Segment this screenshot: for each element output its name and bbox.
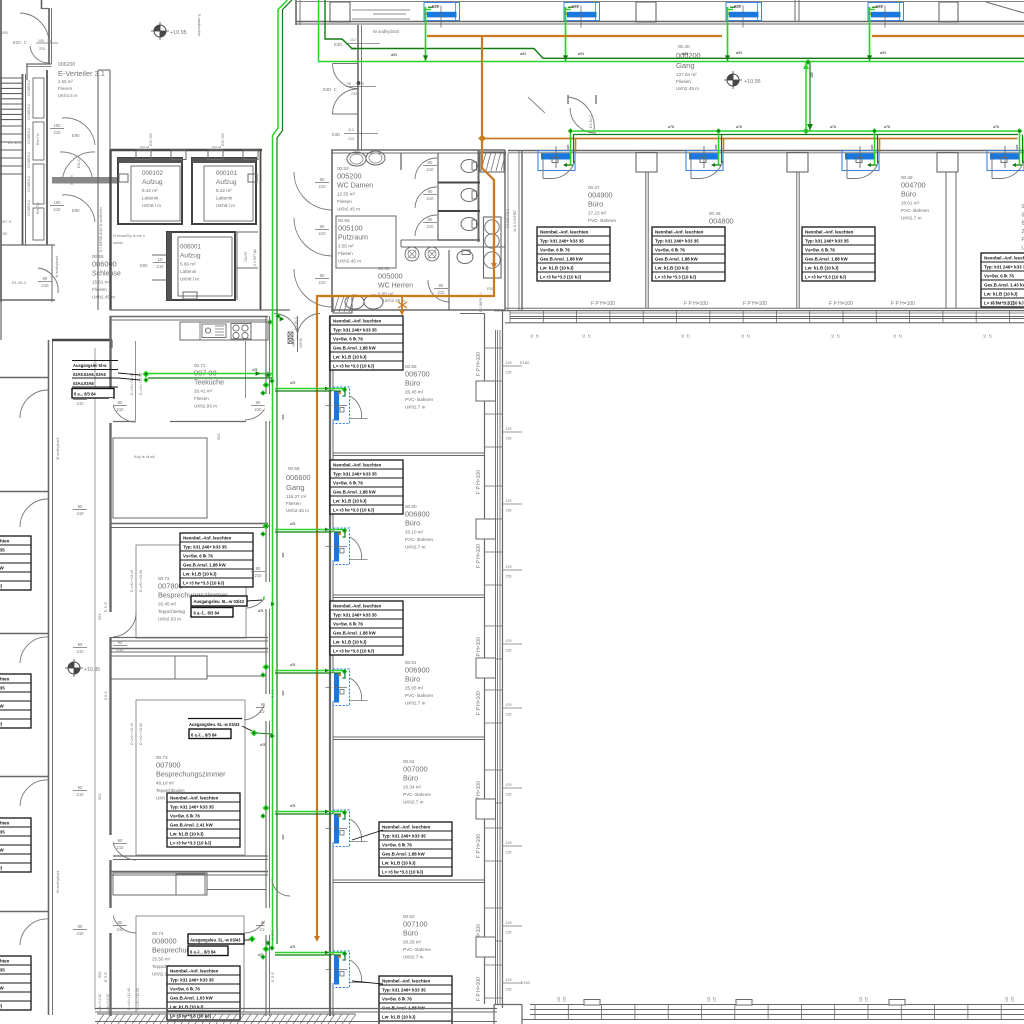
svg-text:Putzraum: Putzraum (338, 235, 368, 242)
svg-text:PVC- Bahnen: PVC- Bahnen (901, 208, 930, 213)
svg-text:Lw: k1.B (10 kJ): Lw: k1.B (10 kJ) (655, 266, 689, 271)
svg-text:00.48: 00.48 (901, 175, 913, 180)
svg-text:00.60: 00.60 (405, 504, 417, 509)
svg-text:a78: a78 (260, 743, 266, 747)
svg-text:75: 75 (47, 39, 51, 43)
svg-text:005200: 005200 (337, 172, 362, 181)
svg-text:28.26 m²: 28.26 m² (403, 940, 422, 945)
svg-text:Typ: k31 246+ k33 35: Typ: k31 246+ k33 35 (984, 265, 1024, 270)
svg-text:Vs=5w. 6 lk 76: Vs=5w. 6 lk 76 (183, 554, 213, 559)
svg-text:UKh2.7 m: UKh2.7 m (901, 215, 922, 220)
svg-text:95: 95 (347, 82, 351, 86)
svg-text:155: 155 (506, 575, 512, 579)
svg-text:UKh2.7 m: UKh2.7 m (405, 404, 426, 409)
svg-text:155: 155 (506, 988, 512, 992)
svg-text:E3C- C: E3C- C (13, 40, 27, 45)
svg-text:F P H=100: F P H=100 (476, 834, 482, 858)
svg-text:125: 125 (865, 996, 869, 1002)
svg-text:E160: E160 (521, 981, 530, 985)
svg-text:006200: 006200 (58, 62, 75, 68)
svg-text:15.61 m²: 15.61 m² (92, 280, 111, 285)
svg-text:80: 80 (320, 177, 325, 182)
svg-text:W andhydrant: W andhydrant (373, 29, 400, 34)
svg-text:00.73: 00.73 (156, 755, 168, 760)
svg-text:Nennbel.-Anf. leuchten: Nennbel.-Anf. leuchten (382, 979, 431, 984)
svg-text:42B: 42B (281, 691, 285, 696)
svg-text:155: 155 (506, 371, 512, 375)
svg-text:UKh2.45 m: UKh2.45 m (337, 206, 360, 211)
svg-text:92: 92 (983, 334, 987, 338)
svg-text:D u K=+13.90: D u K=+13.90 (139, 723, 143, 745)
svg-text:010 10: 010 10 (212, 145, 222, 149)
svg-text:UKh2.45 m: UKh2.45 m (676, 86, 699, 91)
svg-text:210: 210 (77, 511, 85, 516)
svg-text:Ges.B.Ansl. 1.88 kW: Ges.B.Ansl. 1.88 kW (183, 563, 226, 568)
svg-text:Typ: k31 246+ k33 35: Typ: k31 246+ k33 35 (333, 328, 377, 333)
svg-text:Lw: k1.B (10 kJ): Lw: k1.B (10 kJ) (333, 499, 367, 504)
svg-text:Nennbel.-Anf. leuchten: Nennbel.-Anf. leuchten (0, 959, 10, 964)
svg-text:210: 210 (117, 407, 125, 412)
svg-text:Nennbel.-Anf. leuchten: Nennbel.-Anf. leuchten (183, 536, 232, 541)
svg-text:UKh: UKh (156, 795, 165, 800)
svg-text:Vs=5w. 6 lk 76: Vs=5w. 6 lk 76 (984, 274, 1014, 279)
svg-text:E30 -053: E30 -053 (149, 133, 153, 146)
svg-text:210: 210 (77, 649, 85, 654)
svg-text:Typ: k31 246+ k33 35: Typ: k31 246+ k33 35 (333, 472, 377, 477)
svg-text:0 0 B/B 0 0: 0 0 B/B 0 0 (27, 128, 31, 144)
svg-text:5: 5 (362, 82, 364, 86)
svg-text:0 u K=+13.90: 0 u K=+13.90 (106, 994, 110, 1014)
svg-text:Vs=5w. 6 lk 76: Vs=5w. 6 lk 76 (655, 248, 685, 253)
svg-text:F P H=100: F P H=100 (476, 352, 482, 376)
svg-text:210: 210 (42, 283, 50, 288)
svg-text:25: 25 (837, 334, 841, 338)
svg-text:0 0 B/B 0 0: 0 0 B/B 0 0 (27, 176, 31, 192)
svg-text:Nennbel.-Anf. leuchten: Nennbel.-Anf. leuchten (540, 230, 589, 235)
svg-text:129: 129 (506, 565, 512, 569)
svg-text:90: 90 (78, 785, 83, 790)
svg-text:92: 92 (582, 334, 586, 338)
svg-text:D u K=+13.40: D u K=+13.40 (130, 723, 134, 745)
svg-text:00.58: 00.58 (288, 466, 300, 471)
svg-text:F P H=100: F P H=100 (829, 301, 853, 307)
svg-text:92: 92 (831, 334, 835, 338)
svg-text:00.63: 00.63 (403, 914, 415, 919)
svg-text:Nennbel.-Anf. leuchten: Nennbel.-Anf. leuchten (0, 821, 10, 826)
svg-text:Ges.B.Ansl. 1.43 kW: Ges.B.Ansl. 1.43 kW (984, 283, 1024, 288)
svg-text:Vs=5w. 6 lk 76: Vs=5w. 6 lk 76 (333, 622, 363, 627)
svg-text:E S G: E S G (271, 930, 275, 940)
svg-text:Typ: k31 246+ k33 35: Typ: k31 246+ k33 35 (170, 805, 214, 810)
svg-text:155: 155 (506, 437, 512, 441)
svg-text:3.55 m²: 3.55 m² (338, 244, 354, 249)
svg-text:E S G: E S G (104, 972, 108, 982)
svg-text:6 a.-l... 8/3 84: 6 a.-l... 8/3 84 (194, 611, 220, 616)
svg-text:006600: 006600 (286, 473, 311, 482)
svg-text:B randlechler: B randlechler (197, 14, 201, 37)
svg-text:a78: a78 (290, 381, 296, 385)
svg-text:100: 100 (54, 123, 62, 128)
svg-text:Lw: k1.B (10 kJ): Lw: k1.B (10 kJ) (183, 572, 217, 577)
svg-text:F P H=100: F P H=100 (476, 637, 482, 661)
svg-text:a78: a78 (830, 125, 836, 129)
svg-text:240/75: 240/75 (244, 252, 248, 262)
svg-text:E30-C: E30-C (77, 158, 81, 168)
svg-text:E S G: E S G (271, 972, 275, 982)
svg-text:10: 10 (158, 257, 163, 262)
svg-text:26.10 m²: 26.10 m² (405, 530, 424, 535)
svg-text:Ges.B.Ansl. 1.88 kW: Ges.B.Ansl. 1.88 kW (333, 631, 376, 636)
svg-text:a93: a93 (736, 51, 742, 55)
svg-text:90: 90 (118, 400, 123, 405)
svg-text:Aufzug: Aufzug (180, 253, 201, 260)
svg-text:Fliesen: Fliesen (676, 79, 691, 84)
svg-text:Typ: k31 246+ k33 35: Typ: k31 246+ k33 35 (0, 686, 5, 691)
svg-text:90: 90 (256, 566, 261, 571)
svg-text:007800: 007800 (158, 582, 183, 591)
svg-text:L= r3 lw *3.3 (10 kJ): L= r3 lw *3.3 (10 kJ) (333, 364, 375, 369)
svg-text:a28: a28 (572, 4, 579, 9)
svg-text:F P H=100: F P H=100 (591, 301, 615, 307)
svg-text:90: 90 (256, 400, 261, 405)
svg-text:220: 220 (39, 47, 45, 51)
svg-text:28.61 m²: 28.61 m² (901, 201, 920, 206)
svg-text:129: 129 (506, 841, 512, 845)
svg-text:00.55: 00.55 (92, 254, 104, 259)
svg-text:L= r3 lw *3.3 (10 kJ): L= r3 lw *3.3 (10 kJ) (170, 841, 212, 846)
svg-text:Aufzug: Aufzug (142, 179, 163, 186)
svg-text:Nennbel.-Anf. leuchten: Nennbel.-Anf. leuchten (0, 677, 10, 682)
svg-text:42B: 42B (870, 145, 874, 150)
svg-text:210: 210 (117, 927, 125, 932)
svg-text:129: 129 (506, 921, 512, 925)
svg-text:92: 92 (741, 334, 745, 338)
svg-text:a78: a78 (290, 522, 296, 526)
svg-text:Lattenin: Lattenin (142, 196, 159, 201)
svg-text:PVC- Bahnen: PVC- Bahnen (405, 693, 434, 698)
svg-text:25: 25 (687, 334, 691, 338)
svg-text:L= r3 lw *3.3 (10 kJ): L= r3 lw *3.3 (10 kJ) (655, 275, 697, 280)
svg-text:116.27 m²: 116.27 m² (286, 494, 307, 499)
svg-text:925: 925 (557, 996, 561, 1002)
svg-text:Vs=5w. 6 lk 76: Vs=5w. 6 lk 76 (805, 248, 835, 253)
svg-text:25: 25 (588, 334, 592, 338)
svg-text:UKh2.45 m: UKh2.45 m (286, 508, 309, 513)
svg-text:125: 125 (713, 996, 717, 1002)
svg-text:129: 129 (506, 427, 512, 431)
svg-text:Nennbel.-Anf. leuchten: Nennbel.-Anf. leuchten (0, 539, 10, 544)
svg-text:PVC- Bahnen: PVC- Bahnen (403, 792, 432, 797)
svg-text:E90: E90 (72, 133, 80, 138)
svg-text:90: 90 (118, 838, 123, 843)
svg-text:210: 210 (77, 792, 85, 797)
svg-text:925: 925 (1005, 996, 1009, 1002)
svg-text:92: 92 (681, 334, 685, 338)
svg-text:112: 112 (350, 38, 356, 42)
svg-text:Nennbel.-Anf. leuchten: Nennbel.-Anf. leuchten (382, 825, 431, 830)
svg-text:42B: 42B (566, 145, 570, 150)
svg-text:Fliesen: Fliesen (58, 86, 73, 91)
svg-text:Nennbel.-Anf. leuchten: Nennbel.-Anf. leuchten (333, 604, 382, 609)
svg-text:a93: a93 (578, 52, 584, 56)
svg-text:953: 953 (217, 434, 221, 440)
svg-text:210: 210 (427, 224, 435, 229)
svg-text:Büro: Büro (405, 519, 420, 528)
svg-text:Ausgangsleu. 5L.-w 03/43: Ausgangsleu. 5L.-w 03/43 (194, 599, 245, 604)
svg-text:Lw: k1.B (10 kJ): Lw: k1.B (10 kJ) (170, 832, 204, 837)
svg-text:26.41 m²: 26.41 m² (194, 389, 213, 394)
svg-text:6 a... 8/3 84: 6 a... 8/3 84 (74, 392, 96, 397)
svg-text:UKh2.45 m: UKh2.45 m (338, 258, 361, 263)
svg-text:2.55 m²: 2.55 m² (58, 79, 73, 84)
svg-text:Ges.B.Ansl. 1.88 kW: Ges.B.Ansl. 1.88 kW (333, 490, 376, 495)
svg-text:E160: E160 (520, 360, 530, 365)
svg-text:92: 92 (893, 334, 897, 338)
svg-text:000102: 000102 (142, 170, 164, 177)
svg-text:155: 155 (506, 649, 512, 653)
svg-text:a78: a78 (252, 368, 258, 372)
svg-text:210: 210 (255, 573, 263, 578)
svg-text:UKh8.l m: UKh8.l m (142, 203, 161, 208)
svg-text:Ges.B.Ansl. 2.41 kW: Ges.B.Ansl. 2.41 kW (170, 823, 213, 828)
svg-text:5.42 m²: 5.42 m² (216, 188, 232, 193)
svg-text:007900: 007900 (156, 761, 181, 770)
svg-text:a93: a93 (880, 51, 886, 55)
svg-text:F P H=100: F P H=100 (684, 301, 708, 307)
svg-text:D u K=+13.00: D u K=+13.00 (136, 988, 140, 1010)
svg-text:Fliesen: Fliesen (337, 199, 352, 204)
svg-text:Typ: k31 246+ k33 35: Typ: k31 246+ k33 35 (382, 834, 426, 839)
svg-text:Fliesen: Fliesen (286, 501, 301, 506)
svg-text:0 0 B/B 0 0: 0 0 B/B 0 0 (27, 104, 31, 120)
svg-text:a78: a78 (290, 663, 296, 667)
svg-text:E3D- C: E3D- C (323, 87, 337, 92)
svg-text:006001: 006001 (180, 244, 202, 251)
svg-text:005000: 005000 (378, 272, 403, 281)
svg-text:Vs=5w. 6 lk 76: Vs=5w. 6 lk 76 (540, 248, 570, 253)
svg-text:L= r3 lw *3.3 (10 kJ): L= r3 lw *3.3 (10 kJ) (540, 275, 582, 280)
svg-text:Büro: Büro (405, 379, 420, 388)
svg-text:00.62: 00.62 (403, 759, 415, 764)
svg-text:Typ: k31 246+ k33 35: Typ: k31 246+ k33 35 (805, 239, 849, 244)
svg-text:125/30: 125/30 (299, 338, 303, 348)
svg-text:F P H=100: F P H=100 (991, 301, 1015, 307)
svg-text:N etzaufSp is ele n: N etzaufSp is ele n (113, 234, 145, 238)
svg-text:80: 80 (428, 189, 433, 194)
svg-text:42B: 42B (281, 835, 285, 840)
svg-text:Lattenin: Lattenin (216, 196, 233, 201)
svg-text:125: 125 (1011, 996, 1015, 1002)
svg-text:80: 80 (439, 283, 444, 288)
svg-text:Fliesen: Fliesen (194, 396, 209, 401)
svg-text:Vs=5w. 6 lk 76: Vs=5w. 6 lk 76 (382, 997, 412, 1002)
svg-text:210: 210 (427, 196, 435, 201)
svg-text:UKh8.l m: UKh8.l m (180, 276, 199, 281)
svg-text:129: 129 (506, 703, 512, 707)
svg-text:a78: a78 (258, 609, 264, 613)
svg-text:Fliesen: Fliesen (338, 251, 353, 256)
svg-text:005100: 005100 (338, 224, 363, 233)
svg-text:Büro: Büro (901, 190, 916, 199)
svg-text:25: 25 (536, 334, 540, 338)
svg-text:Typ: k31 246+ k33 35: Typ: k31 246+ k33 35 (540, 239, 584, 244)
svg-text:Büro: Büro (588, 200, 603, 209)
svg-text:155: 155 (506, 851, 512, 855)
svg-text:Ges.B.Ansl. 1.88 kW: Ges.B.Ansl. 1.88 kW (382, 852, 425, 857)
svg-text:Ges.B.Ansl. 1.88 kW: Ges.B.Ansl. 1.88 kW (540, 257, 583, 262)
svg-text:D 0 B/FBD 8080 B randtierller: D 0 B/FBD 8080 B randtierller (99, 206, 103, 252)
svg-text:a78: a78 (668, 125, 674, 129)
svg-text:L= r3 lw *3.3 (10 kJ): L= r3 lw *3.3 (10 kJ) (183, 581, 225, 586)
svg-text:Fliesen: Fliesen (92, 287, 107, 292)
svg-text:137.54 m²: 137.54 m² (676, 72, 697, 77)
svg-text:UKh3.5 m: UKh3.5 m (58, 93, 78, 98)
svg-text:+10.95: +10.95 (170, 30, 187, 36)
svg-text:E1,30-C: E1,30-C (12, 280, 27, 285)
svg-text:90: 90 (78, 924, 83, 929)
svg-text:PVC- Bahnen: PVC- Bahnen (403, 947, 432, 952)
svg-text:E90: E90 (72, 208, 80, 213)
svg-text:010 10: 010 10 (140, 145, 150, 149)
svg-text:26.45 m²: 26.45 m² (405, 390, 424, 395)
svg-text:112: 112 (348, 128, 354, 132)
svg-text:00.40: 00.40 (678, 44, 690, 49)
svg-text:00.72: 00.72 (158, 576, 170, 581)
svg-text:210: 210 (427, 167, 435, 172)
svg-text:210: 210 (117, 845, 125, 850)
svg-text:W andhydrant: W andhydrant (55, 256, 59, 278)
svg-text:25: 25 (989, 334, 993, 338)
svg-text:Ges.B.Ansl. 1.88 kW: Ges.B.Ansl. 1.88 kW (805, 257, 848, 262)
svg-text:a78: a78 (290, 804, 296, 808)
svg-text:210: 210 (319, 184, 327, 189)
svg-text:a28: a28 (734, 4, 741, 9)
svg-text:00.47: 00.47 (588, 185, 600, 190)
svg-text:125: 125 (563, 996, 567, 1002)
svg-text:Nennbel.-Anf. leuchten: Nennbel.-Anf. leuchten (655, 230, 704, 235)
svg-text:Typ: k31 246+ k33 35: Typ: k31 246+ k33 35 (0, 548, 5, 553)
svg-text:0 0 B/B 0 0: 0 0 B/B 0 0 (27, 80, 31, 96)
svg-text:Gang: Gang (676, 61, 695, 70)
svg-text:25.65 m²: 25.65 m² (405, 686, 424, 691)
svg-text:129: 129 (506, 361, 512, 365)
svg-text:UKh2.7 m: UKh2.7 m (405, 544, 426, 549)
svg-text:W andhydrant: W andhydrant (56, 438, 60, 460)
svg-text:E30 -053: E30 -053 (221, 133, 225, 146)
svg-text:210: 210 (77, 931, 85, 936)
svg-text:Typ: k31 246+ k33 35: Typ: k31 246+ k33 35 (0, 830, 5, 835)
svg-text:Rev.Tür: Rev.Tür (36, 201, 40, 214)
svg-text:953: 953 (98, 614, 102, 620)
svg-text:D u K=+13.40: D u K=+13.40 (130, 373, 134, 395)
svg-text:L= r3 lw *3.3 (10 kJ): L= r3 lw *3.3 (10 kJ) (333, 649, 375, 654)
svg-text:6 a.-l... 8/3 84: 6 a.-l... 8/3 84 (190, 949, 216, 954)
svg-text:Lw: k1.B (10 kJ): Lw: k1.B (10 kJ) (382, 1015, 416, 1020)
svg-text:Teppichbelag: Teppichbelag (158, 609, 186, 614)
svg-text:007100: 007100 (403, 920, 428, 929)
svg-text:UKh2.7 m: UKh2.7 m (405, 700, 426, 705)
svg-text:26.34 m²: 26.34 m² (403, 785, 422, 790)
svg-text:100: 100 (54, 200, 62, 205)
svg-text:00.46: 00.46 (709, 211, 721, 216)
svg-text:0 0 B/B 0 0: 0 0 B/B 0 0 (27, 152, 31, 168)
svg-text:42B: 42B (281, 415, 285, 420)
svg-text:155: 155 (506, 793, 512, 797)
svg-text:D u K=+13.90: D u K=+13.90 (139, 373, 143, 395)
svg-text:E1,30-C: E1,30-C (8, 140, 23, 145)
svg-text:00.50: 00.50 (378, 266, 390, 271)
svg-text:210: 210 (77, 401, 85, 406)
svg-text:L= r3 lw *3.3 (10 kJ): L= r3 lw *3.3 (10 kJ) (382, 870, 424, 875)
svg-text:00.59: 00.59 (405, 364, 417, 369)
svg-text:155: 155 (506, 713, 512, 717)
svg-text:210: 210 (54, 130, 62, 135)
svg-text:Nennbel.-Anf. leuchten: Nennbel.-Anf. leuchten (170, 796, 219, 801)
svg-text:42B: 42B (1015, 145, 1019, 150)
svg-text:90: 90 (43, 276, 48, 281)
svg-text:Köp ie rä ski: Köp ie rä ski (134, 455, 155, 459)
svg-text:PVC- Bahnen: PVC- Bahnen (588, 218, 617, 223)
svg-text:Teppichboden: Teppichboden (156, 788, 185, 793)
svg-text:006900: 006900 (405, 666, 430, 675)
svg-text:0 0 B/B 0 0: 0 0 B/B 0 0 (27, 200, 31, 216)
svg-text:F P H=100: F P H=100 (476, 470, 482, 494)
svg-text:12.55 m²: 12.55 m² (337, 192, 356, 197)
svg-text:+10.95: +10.95 (744, 79, 761, 85)
svg-text:E30: E30 (0, 231, 8, 236)
svg-text:210: 210 (157, 264, 165, 269)
svg-text:Lw: k1.B (10 kJ): Lw: k1.B (10 kJ) (540, 266, 574, 271)
svg-text:6 a.-l... 8/3 84: 6 a.-l... 8/3 84 (191, 732, 217, 737)
svg-text:004900: 004900 (588, 191, 613, 200)
svg-text:48.10 m²: 48.10 m² (156, 781, 175, 786)
svg-text:F P H=100: F P H=100 (743, 301, 767, 307)
svg-text:42B: 42B (714, 145, 718, 150)
svg-text:E90: E90 (140, 263, 148, 268)
svg-text:00.61: 00.61 (405, 660, 417, 665)
svg-text:004800: 004800 (709, 217, 734, 226)
svg-text:Lw: k1.B (10 kJ): Lw: k1.B (10 kJ) (984, 292, 1018, 297)
svg-text:D u K=+13.40: D u K=+13.40 (130, 570, 134, 592)
svg-text:006000: 006000 (92, 260, 117, 269)
svg-text:Ges.B.Ansl. 1.03 kW: Ges.B.Ansl. 1.03 kW (170, 996, 213, 1001)
svg-text:F P H=100: F P H=100 (891, 301, 915, 307)
svg-text:Lattenin: Lattenin (180, 269, 197, 274)
svg-text:129: 129 (506, 978, 512, 982)
svg-text:Nennbel.-Anf. leuchten: Nennbel.-Anf. leuchten (333, 463, 382, 468)
svg-text:Ausgangsleu. 5L.-w 03/43: Ausgangsleu. 5L.-w 03/43 (190, 937, 241, 942)
svg-text:scelle: scelle (113, 241, 123, 245)
svg-text:90: 90 (320, 224, 325, 229)
svg-text:D u K=+13.90: D u K=+13.90 (139, 570, 143, 592)
svg-text:Ges.B.Ansl. 1.88 kW: Ges.B.Ansl. 1.88 kW (655, 257, 698, 262)
svg-text:D07 S: D07 S (0, 219, 11, 224)
svg-text:a28: a28 (432, 4, 439, 9)
svg-text:25: 25 (899, 334, 903, 338)
svg-text:W andhydrant: W andhydrant (56, 871, 60, 893)
svg-text:90: 90 (118, 920, 123, 925)
svg-text:F P H=100: F P H=100 (476, 977, 482, 1001)
svg-text:UKh2.45 m: UKh2.45 m (92, 294, 115, 299)
svg-text:Besprechungszimmer: Besprechungszimmer (156, 770, 226, 779)
svg-text:F P H=100: F P H=100 (476, 691, 482, 715)
svg-text:UKh8.l m: UKh8.l m (216, 203, 235, 208)
svg-text:PVC- Bahnen: PVC- Bahnen (405, 397, 434, 402)
svg-text:Vs=5w. 6 lk 76: Vs=5w. 6 lk 76 (170, 987, 200, 992)
svg-text:Typ: k31 246+ k33 35: Typ: k31 246+ k33 35 (333, 613, 377, 618)
svg-text:Lw: k1.B (10 kJ): Lw: k1.B (10 kJ) (805, 266, 839, 271)
svg-text:90: 90 (78, 504, 83, 509)
